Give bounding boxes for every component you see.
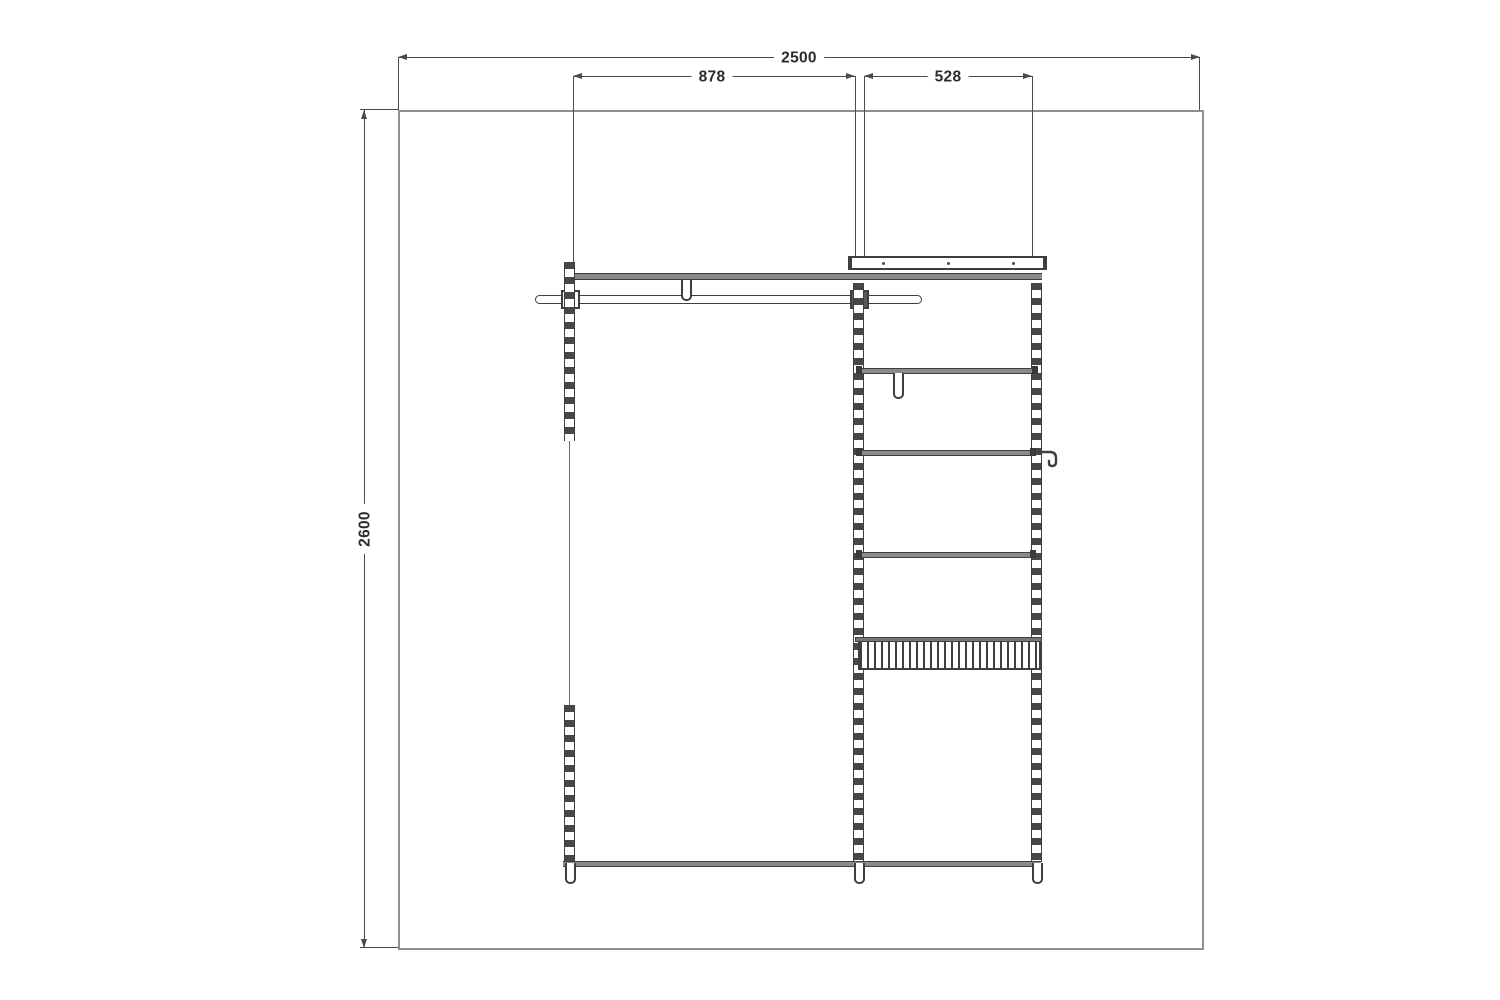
ext-line-left-bay bbox=[573, 76, 574, 262]
shelf-bracket bbox=[1032, 366, 1038, 374]
standard-foot bbox=[1032, 863, 1043, 884]
left-standard-upper bbox=[564, 262, 575, 441]
dim-label-left-bay: 878 bbox=[692, 69, 733, 85]
arrow-up-icon bbox=[361, 110, 367, 119]
bottom-rail bbox=[563, 861, 1041, 867]
arrow-left-icon bbox=[864, 73, 873, 79]
ext-line-right-bay-right bbox=[1032, 76, 1033, 256]
standard-foot bbox=[854, 863, 865, 884]
arrow-left-icon bbox=[398, 54, 407, 60]
top-shelf bbox=[575, 273, 1042, 280]
track-screw-icon bbox=[1012, 262, 1015, 265]
ext-line-left-bay-right bbox=[855, 76, 856, 258]
left-standard-lower bbox=[564, 705, 575, 862]
shelf-bracket bbox=[856, 448, 862, 456]
arrow-right-icon bbox=[846, 73, 855, 79]
track-screw-icon bbox=[882, 262, 885, 265]
shelf-bracket bbox=[1030, 448, 1036, 456]
ext-line-right bbox=[1199, 57, 1200, 110]
wire-basket bbox=[858, 642, 1041, 670]
shelf-bracket bbox=[856, 366, 862, 374]
ext-tick-bottom bbox=[360, 947, 398, 948]
ext-tick-top bbox=[360, 109, 398, 110]
shelf-2 bbox=[860, 450, 1034, 456]
ext-line-right-bay-left bbox=[864, 76, 865, 258]
shelf-bracket bbox=[856, 550, 862, 558]
ext-line-left bbox=[398, 57, 399, 110]
arrow-left-icon bbox=[573, 73, 582, 79]
dim-label-overall-width: 2500 bbox=[774, 50, 824, 66]
shelf-1 bbox=[860, 368, 1034, 374]
shelf-bracket bbox=[1030, 550, 1036, 558]
rod-support-bracket bbox=[681, 280, 692, 301]
closet-plan-canvas: 2500 878 528 2600 bbox=[0, 0, 1500, 1000]
side-hook bbox=[1038, 446, 1064, 472]
wall-outline bbox=[398, 110, 1204, 950]
dim-label-overall-height: 2600 bbox=[357, 504, 373, 554]
shelf-3 bbox=[860, 552, 1034, 558]
valet-hook bbox=[893, 373, 904, 399]
track-screw-icon bbox=[947, 262, 950, 265]
arrow-right-icon bbox=[1023, 73, 1032, 79]
left-standard-wire bbox=[569, 441, 570, 705]
dim-label-right-bay: 528 bbox=[928, 69, 969, 85]
standard-foot bbox=[565, 863, 576, 884]
